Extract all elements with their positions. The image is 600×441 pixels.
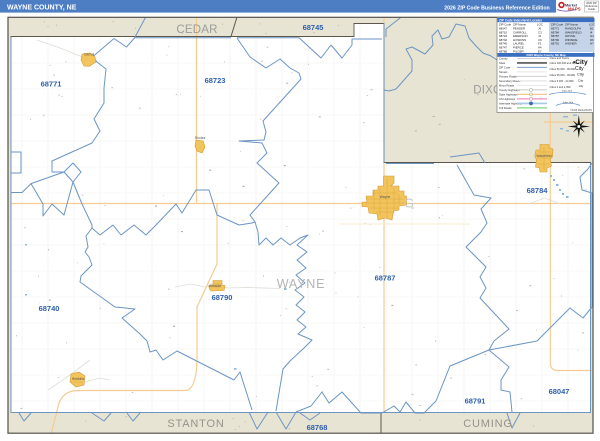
svg-text:CUMING: CUMING bbox=[463, 418, 512, 430]
svg-text:Index Grid: Index Grid bbox=[562, 90, 573, 93]
svg-text:US Highways: US Highways bbox=[499, 97, 516, 101]
svg-text:Wakefield: Wakefield bbox=[536, 154, 551, 158]
svg-text:CEDAR: CEDAR bbox=[176, 24, 217, 36]
svg-text:WAYNE COUNTY, NE: WAYNE COUNTY, NE bbox=[7, 4, 77, 11]
svg-text:Index Grid: Index Grid bbox=[563, 101, 574, 104]
svg-text:ZIP Code: ZIP Code bbox=[499, 65, 511, 69]
svg-text:Guide: Guide bbox=[588, 7, 595, 11]
svg-text:State: State bbox=[499, 61, 506, 65]
svg-text:68047: 68047 bbox=[549, 387, 570, 396]
svg-text:68771: 68771 bbox=[41, 80, 62, 89]
svg-text:G: G bbox=[404, 196, 414, 211]
svg-text:Cities and Towns: Cities and Towns bbox=[550, 56, 570, 60]
svg-text:68768: 68768 bbox=[499, 49, 507, 53]
svg-text:Wayne: Wayne bbox=[380, 195, 391, 199]
svg-text:68740: 68740 bbox=[39, 304, 60, 313]
svg-text:Cities 5,000 - 24,999: Cities 5,000 - 24,999 bbox=[550, 79, 574, 83]
svg-text:68787: 68787 bbox=[375, 274, 396, 283]
svg-text:Toll Roads: Toll Roads bbox=[499, 106, 512, 110]
svg-text:Carroll: Carroll bbox=[84, 53, 95, 57]
svg-text:Hoskins: Hoskins bbox=[72, 377, 85, 381]
svg-text:Streets: Streets bbox=[499, 70, 508, 74]
svg-text:68784: 68784 bbox=[527, 186, 549, 195]
svg-text:Cities 50,000 - 99,999: Cities 50,000 - 99,999 bbox=[550, 67, 576, 71]
svg-text:68791: 68791 bbox=[551, 42, 559, 46]
svg-text:WAYNE: WAYNE bbox=[277, 277, 325, 291]
svg-text:68745: 68745 bbox=[303, 23, 324, 32]
svg-text:City: City bbox=[579, 85, 584, 88]
svg-text:Winside: Winside bbox=[209, 284, 222, 288]
svg-text:Primary Roads: Primary Roads bbox=[499, 74, 517, 78]
svg-text:©2026 MarketMAPS: ©2026 MarketMAPS bbox=[570, 109, 592, 112]
svg-text:H7: H7 bbox=[590, 42, 594, 46]
svg-text:68791: 68791 bbox=[465, 397, 486, 406]
svg-text:City: City bbox=[578, 79, 584, 83]
svg-text:Cities 25,000 - 49,999: Cities 25,000 - 49,999 bbox=[550, 73, 576, 77]
svg-text:STANTON: STANTON bbox=[167, 418, 224, 430]
svg-text:State Highways: State Highways bbox=[499, 92, 518, 96]
svg-text:Cities 0 and 4,999: Cities 0 and 4,999 bbox=[550, 85, 571, 89]
svg-text:•City: •City bbox=[573, 59, 588, 66]
svg-text:2026 ZIP Code Business Referen: 2026 ZIP Code Business Reference Edition bbox=[444, 5, 549, 11]
svg-text:68790: 68790 bbox=[212, 293, 233, 302]
svg-text:Minor Roads: Minor Roads bbox=[499, 83, 515, 87]
svg-text:PILGER: PILGER bbox=[513, 49, 524, 53]
svg-text:County: County bbox=[499, 56, 508, 60]
svg-text:68768: 68768 bbox=[307, 423, 328, 432]
svg-text:City: City bbox=[577, 72, 584, 77]
svg-text:WISNER: WISNER bbox=[565, 42, 577, 46]
svg-text:Sholes: Sholes bbox=[195, 136, 206, 140]
svg-text:68723: 68723 bbox=[205, 76, 226, 85]
